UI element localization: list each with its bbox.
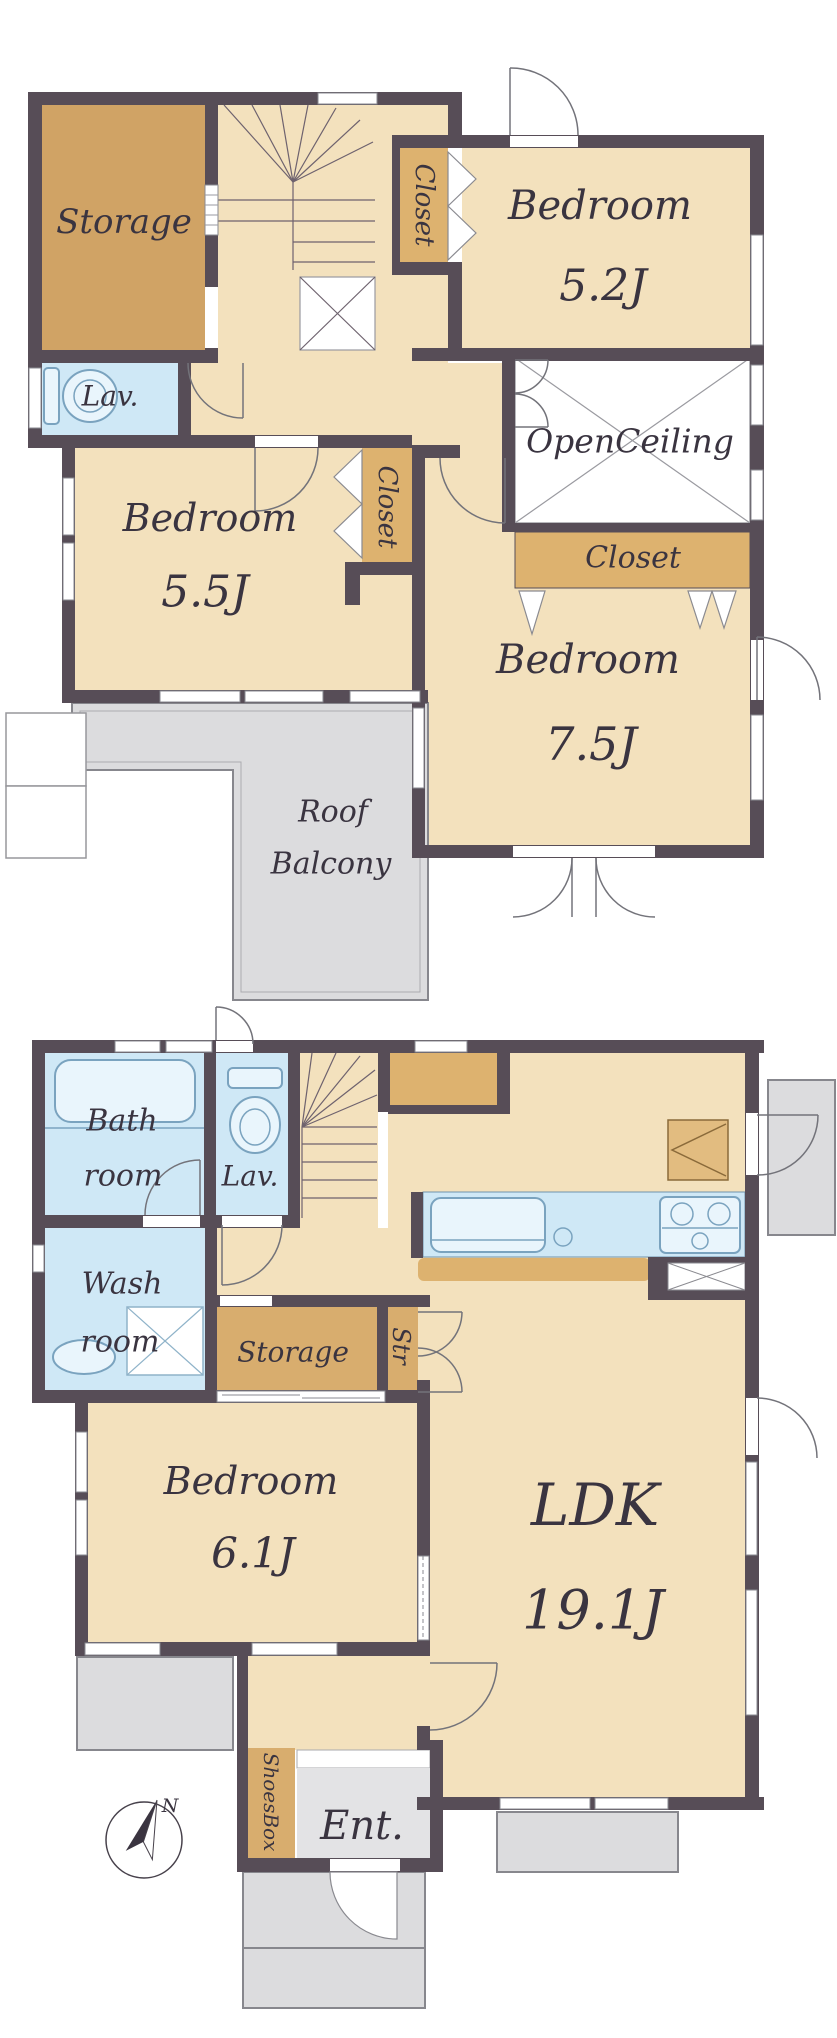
window (76, 1432, 87, 1492)
str-label: Str (387, 1327, 415, 1366)
louver-door (205, 185, 218, 235)
window (500, 1798, 590, 1809)
ac-unit (6, 713, 86, 786)
washroom-label-2: room (81, 1325, 160, 1360)
entrance-step (297, 1750, 430, 1768)
window (350, 691, 420, 702)
shoesbox-label: ShoesBox (259, 1753, 283, 1852)
ldk-name: LDK (530, 1471, 663, 1539)
kitchen-cabinet (418, 1258, 650, 1281)
closet-mid-label: Closet (372, 465, 402, 549)
stove-icon (660, 1197, 740, 1253)
roof-balcony-label-2: Balcony (270, 847, 393, 882)
lav-2f-label: Lav. (81, 380, 139, 413)
door-gap (205, 287, 218, 348)
bedroom-52-area: 5.2J (559, 261, 649, 312)
door-gap (255, 436, 318, 447)
window (29, 368, 41, 428)
sliding-door (217, 1391, 385, 1402)
door-swing (596, 858, 655, 917)
entrance-label: Ent. (319, 1803, 404, 1849)
window (252, 1643, 337, 1655)
deck (497, 1812, 678, 1872)
roof-balcony-label-1: Roof (297, 795, 373, 830)
door-gap (513, 846, 655, 857)
floor-1: N Bath room Lav. Wash room Storage Str B… (32, 1007, 835, 2008)
door-swing (216, 1007, 253, 1044)
closet-top-label: Closet (409, 163, 439, 247)
window (746, 1590, 757, 1715)
window (751, 365, 763, 425)
door-swing (757, 637, 820, 700)
bedroom-75-name: Bedroom (495, 637, 680, 683)
floor-2: Storage Lav. Closet Closet Bedroom 5.2J … (6, 68, 820, 1000)
bathroom-label-2: room (84, 1159, 163, 1194)
floor-plan-page: Storage Lav. Closet Closet Bedroom 5.2J … (0, 0, 837, 2038)
bedroom-52-name: Bedroom (507, 183, 692, 229)
window (63, 478, 74, 535)
window (746, 1462, 757, 1555)
compass-icon: N (106, 1795, 182, 1878)
door-gap (220, 1296, 272, 1306)
balcony-window (413, 708, 424, 788)
side-porch (768, 1080, 835, 1235)
bedroom-55-area: 5.5J (161, 567, 251, 618)
door-gap (216, 1041, 253, 1052)
window (595, 1798, 668, 1809)
window (166, 1041, 212, 1052)
bathroom-label-1: Bath (85, 1104, 157, 1139)
bedroom-52-floor (462, 148, 750, 348)
door-gap (746, 1113, 758, 1175)
storage-1f-label: Storage (237, 1336, 349, 1369)
window (160, 691, 240, 702)
washroom-label-1: Wash (82, 1267, 163, 1302)
window (115, 1041, 160, 1052)
open-ceiling-label: OpenCeiling (526, 422, 734, 461)
door-gap (746, 1398, 758, 1455)
closet-bottom-label: Closet (585, 541, 682, 576)
lav-1f-label: Lav. (221, 1160, 279, 1193)
window (415, 1041, 467, 1052)
storage-2f-label: Storage (56, 202, 192, 242)
window (751, 715, 763, 800)
terrace (77, 1657, 233, 1750)
entrance-door-gap (330, 1859, 400, 1871)
ac-unit (6, 786, 86, 858)
window (85, 1643, 160, 1655)
window (751, 470, 763, 520)
bedroom-55-name: Bedroom (122, 496, 298, 540)
window (63, 543, 74, 600)
bedroom-61-name: Bedroom (163, 1459, 339, 1503)
door-swing (510, 68, 578, 135)
ldk-area: 19.1J (522, 1579, 667, 1642)
window (318, 93, 377, 104)
floor-plan-drawing: Storage Lav. Closet Closet Bedroom 5.2J … (0, 0, 837, 2038)
bedroom-61-area: 6.1J (211, 1529, 297, 1578)
closet-1f-floor (390, 1052, 497, 1107)
window (33, 1245, 44, 1272)
door-gap (143, 1216, 200, 1227)
toilet-icon (228, 1068, 282, 1153)
window (751, 235, 763, 345)
door-swing (757, 1398, 817, 1458)
window (76, 1500, 87, 1555)
north-label: N (161, 1795, 180, 1817)
door-swing (513, 858, 572, 917)
entrance-porch-step-2 (243, 1948, 425, 2008)
door-gap (222, 1216, 282, 1227)
door-gap (510, 136, 578, 147)
window (245, 691, 323, 702)
refrigerator-icon (668, 1120, 728, 1180)
bedroom-75-area: 7.5J (545, 717, 639, 771)
